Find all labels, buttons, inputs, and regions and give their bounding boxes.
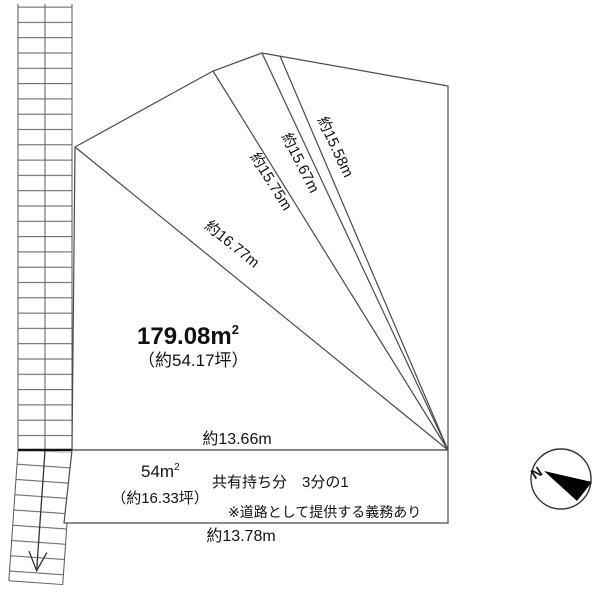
road-parcel-area-sup: 2 bbox=[174, 462, 180, 473]
land-plot-diagram: 約16.77m 約15.75m 約15.67m 約15.58m 179.08m2… bbox=[0, 0, 604, 596]
road-parcel-note: ※道路として提供する義務あり bbox=[228, 504, 421, 520]
road-parcel-area-value: 54m bbox=[141, 462, 174, 481]
main-parcel-area-sup: 2 bbox=[232, 322, 239, 337]
stepped-road-lower bbox=[9, 449, 72, 584]
road-parcel-ownership: 共有持ち分 3分の1 bbox=[212, 474, 349, 491]
main-parcel-tsubo: （約54.17坪） bbox=[138, 351, 249, 370]
main-parcel-area: 179.08m2 bbox=[137, 322, 239, 350]
stepped-road-upper bbox=[18, 4, 72, 451]
dim-label-13-66: 約13.66m bbox=[202, 430, 271, 448]
main-parcel-area-value: 179.08m bbox=[137, 323, 232, 350]
road-parcel-tsubo: （約16.33坪） bbox=[111, 490, 209, 507]
dim-label-13-78: 約13.78m bbox=[206, 527, 275, 545]
